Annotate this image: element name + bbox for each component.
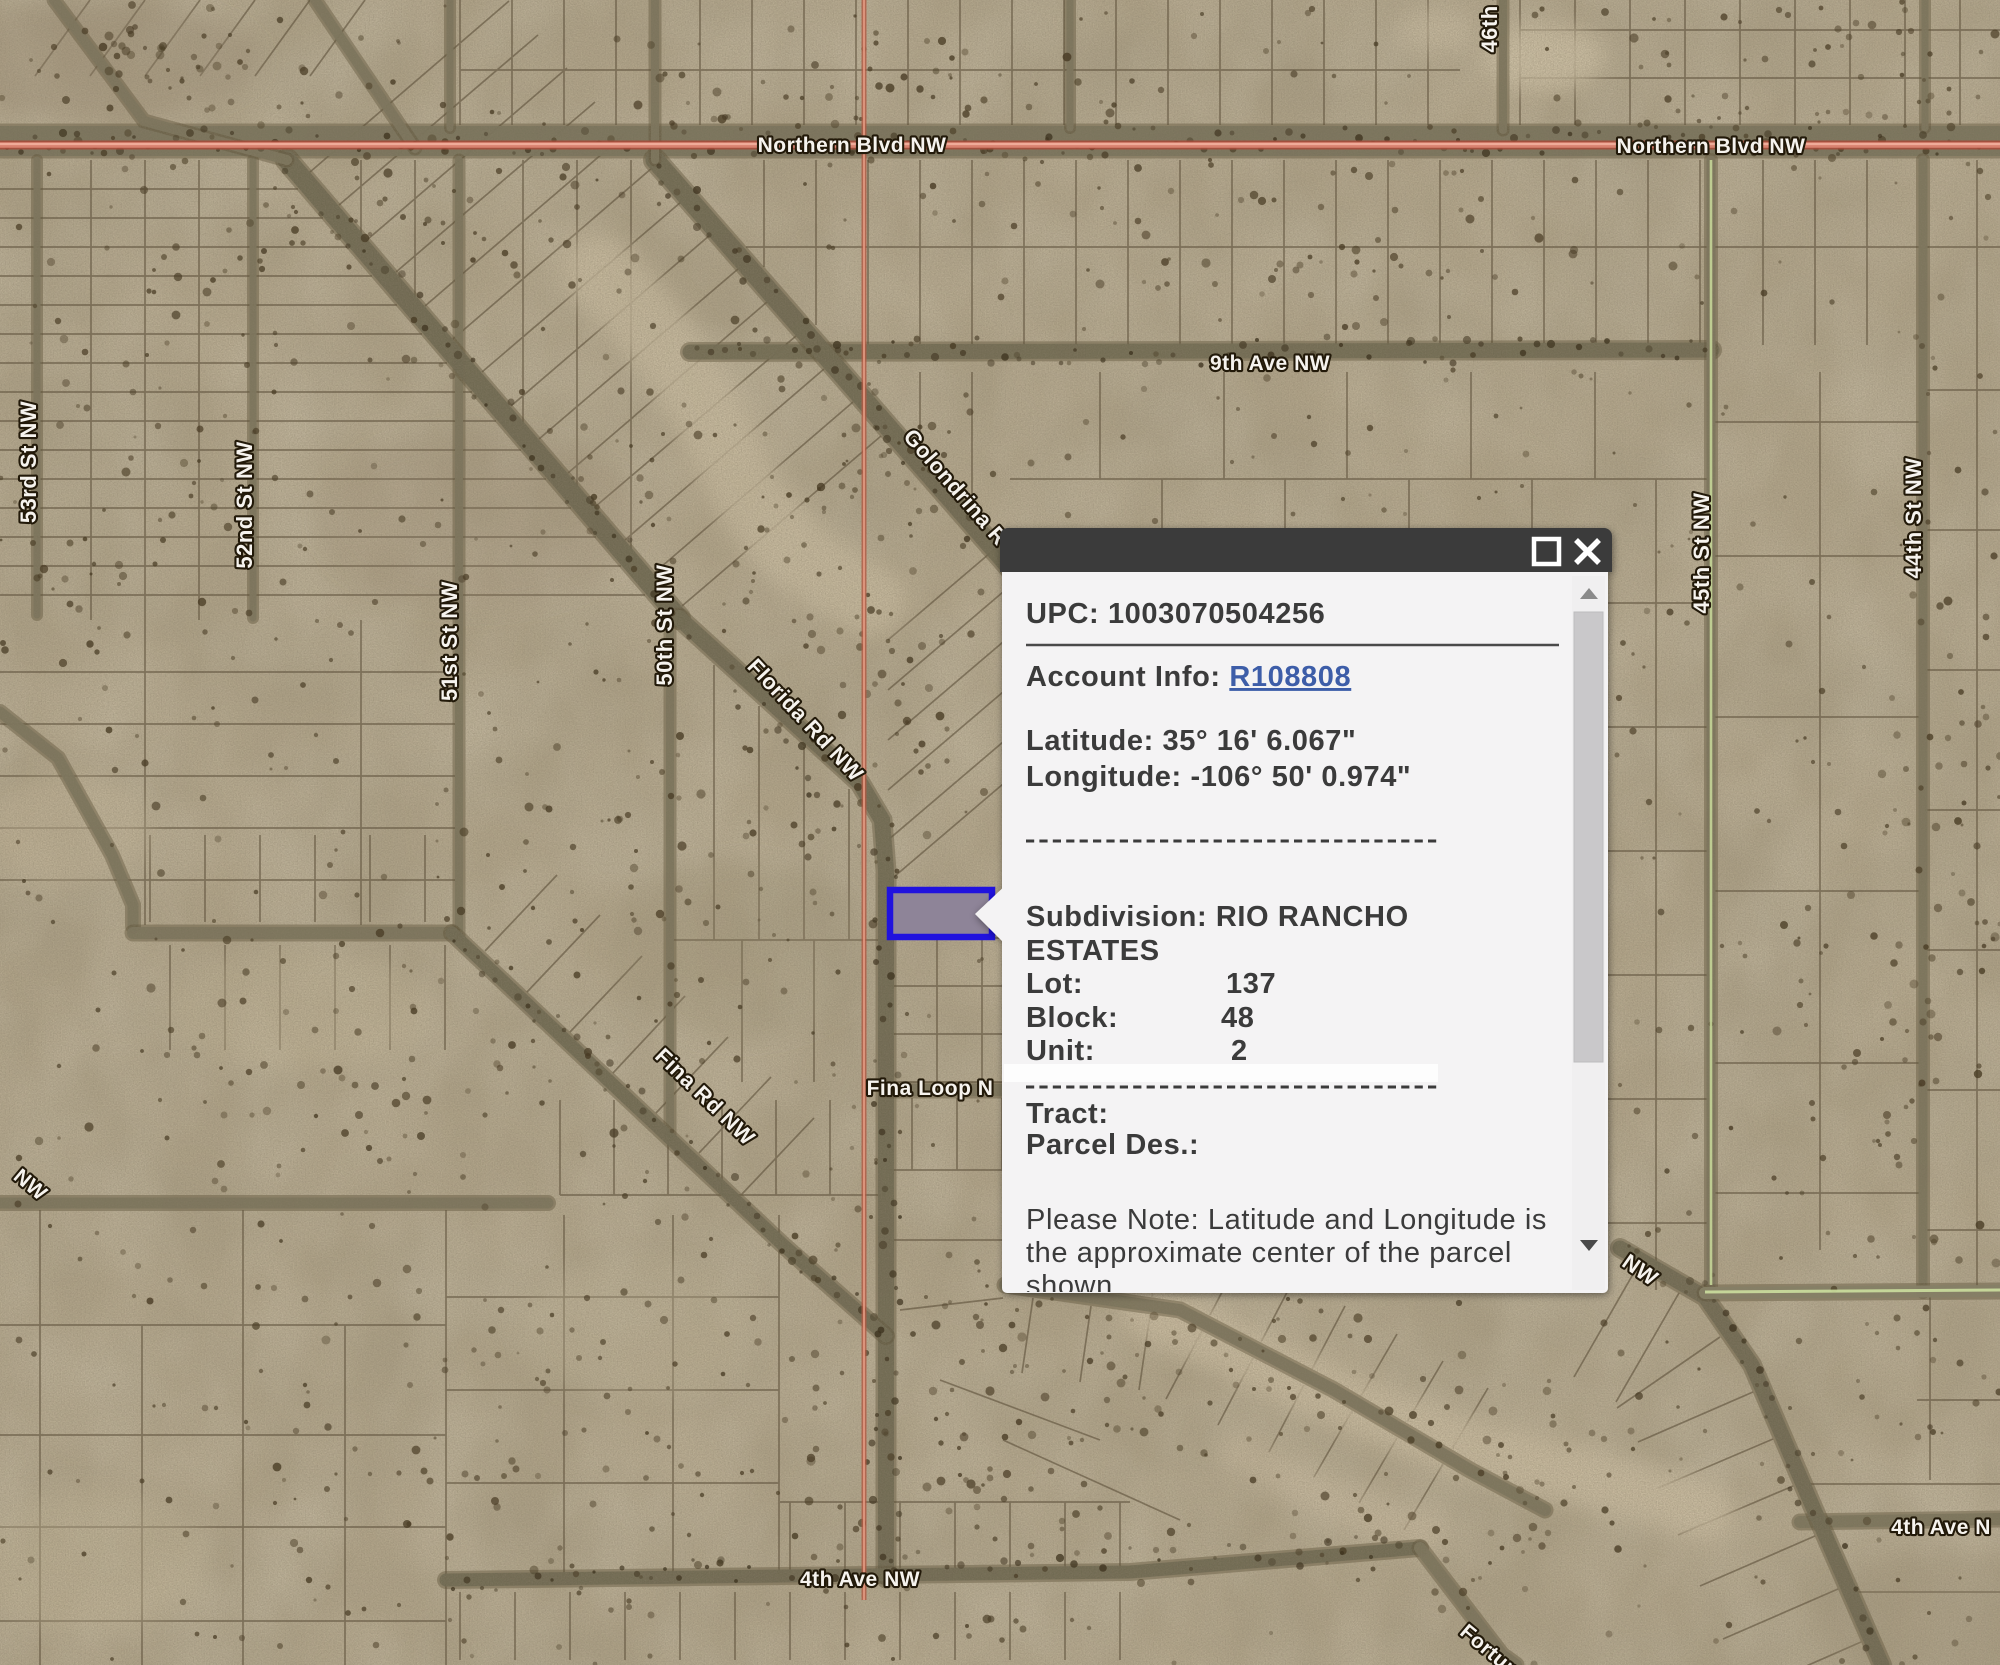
svg-text:44th St NW: 44th St NW bbox=[1901, 457, 1926, 578]
svg-text:4th Ave N: 4th Ave N bbox=[1891, 1516, 1991, 1539]
svg-text:45th St NW: 45th St NW bbox=[1689, 492, 1714, 613]
svg-text:Block:: Block: bbox=[1026, 1002, 1118, 1034]
svg-text:Fina Loop N: Fina Loop N bbox=[867, 1077, 994, 1100]
svg-text:Please Note: Latitude and Long: Please Note: Latitude and Longitude is bbox=[1026, 1204, 1547, 1236]
svg-text:52nd St NW: 52nd St NW bbox=[232, 441, 257, 568]
svg-text:UPC: 1003070504256: UPC: 1003070504256 bbox=[1026, 598, 1325, 630]
svg-text:Parcel Des.:: Parcel Des.: bbox=[1026, 1129, 1199, 1161]
svg-text:4th Ave NW: 4th Ave NW bbox=[800, 1568, 920, 1591]
svg-text:Northern Blvd NW: Northern Blvd NW bbox=[758, 134, 947, 157]
svg-text:9th Ave NW: 9th Ave NW bbox=[1210, 352, 1330, 375]
svg-text:Subdivision: RIO RANCHO: Subdivision: RIO RANCHO bbox=[1026, 901, 1409, 933]
svg-text:ESTATES: ESTATES bbox=[1026, 935, 1160, 967]
svg-text:Tract:: Tract: bbox=[1026, 1098, 1109, 1130]
svg-text:51st St NW: 51st St NW bbox=[437, 581, 462, 701]
svg-text:Northern Blvd NW: Northern Blvd NW bbox=[1617, 135, 1806, 158]
svg-text:the approximate center of the: the approximate center of the parcel bbox=[1026, 1237, 1512, 1269]
svg-text:Account Info: R108808: Account Info: R108808 bbox=[1026, 661, 1351, 693]
svg-text:137: 137 bbox=[1226, 968, 1276, 1000]
svg-text:46th St NW: 46th St NW bbox=[1477, 0, 1502, 53]
svg-text:48: 48 bbox=[1221, 1002, 1254, 1034]
svg-text:Longitude: -106° 50' 0.974": Longitude: -106° 50' 0.974" bbox=[1026, 761, 1411, 793]
svg-text:50th St NW: 50th St NW bbox=[652, 564, 677, 685]
svg-text:53rd St NW: 53rd St NW bbox=[16, 401, 41, 523]
svg-text:Lot:: Lot: bbox=[1026, 968, 1083, 1000]
svg-text:Latitude: 35° 16' 6.067": Latitude: 35° 16' 6.067" bbox=[1026, 725, 1356, 757]
svg-text:Unit:: Unit: bbox=[1026, 1035, 1095, 1067]
svg-text:2: 2 bbox=[1231, 1035, 1248, 1067]
